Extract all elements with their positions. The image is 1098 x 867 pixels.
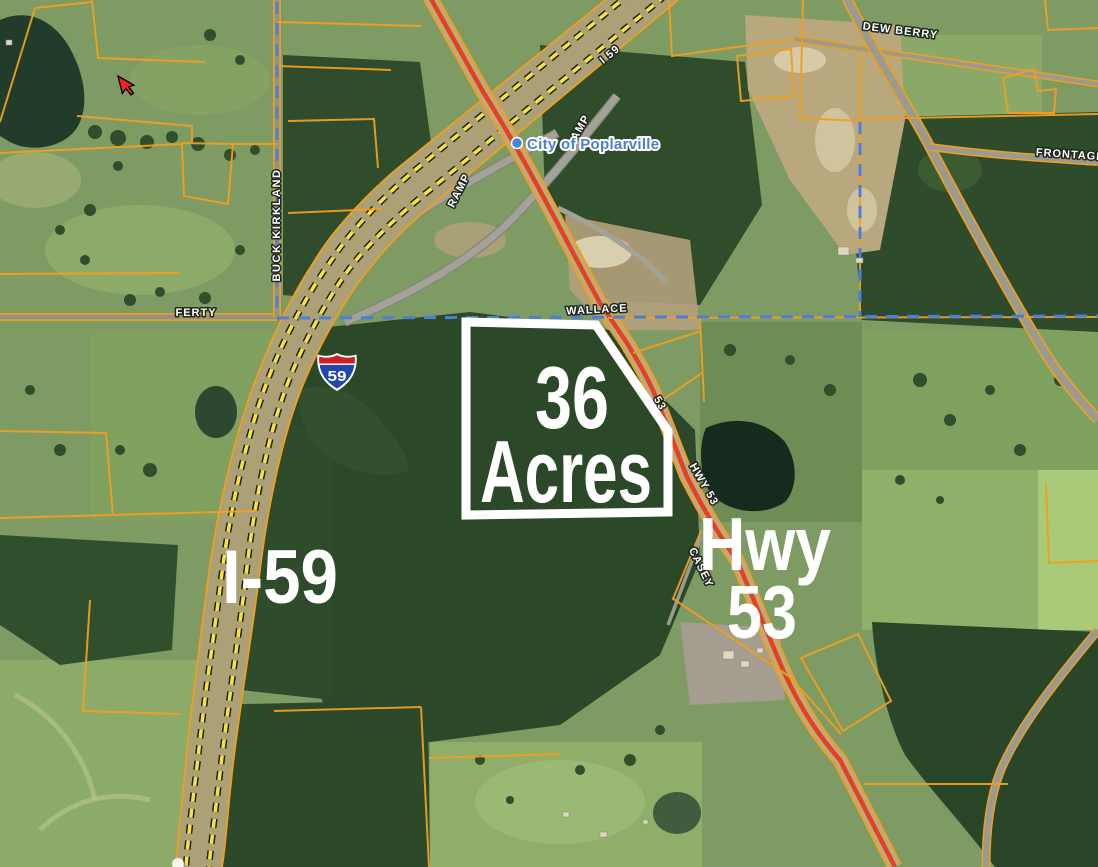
satellite-map: RAMP RAMP RAMP RAMP I 59 I 59 WALLACE WA… bbox=[0, 0, 1098, 867]
interstate-59-text: I-59 bbox=[222, 535, 338, 620]
svg-text:BUCK KIRKLAND: BUCK KIRKLAND bbox=[271, 168, 283, 281]
pond-south bbox=[653, 792, 701, 834]
map-canvas[interactable]: RAMP RAMP RAMP RAMP I 59 I 59 WALLACE WA… bbox=[0, 0, 1098, 867]
city-name-text: City of Poplarville bbox=[527, 136, 659, 153]
shield-number-text: 59 bbox=[328, 368, 347, 385]
highway-53-text-line2: 53 bbox=[727, 570, 797, 654]
pond-west bbox=[195, 386, 237, 438]
svg-text:FERTY: FERTY bbox=[175, 307, 216, 319]
acreage-unit-text: Acres bbox=[480, 422, 652, 521]
city-place-label: City of Poplarville City of Poplarville bbox=[512, 136, 660, 153]
city-marker-icon bbox=[512, 138, 523, 149]
